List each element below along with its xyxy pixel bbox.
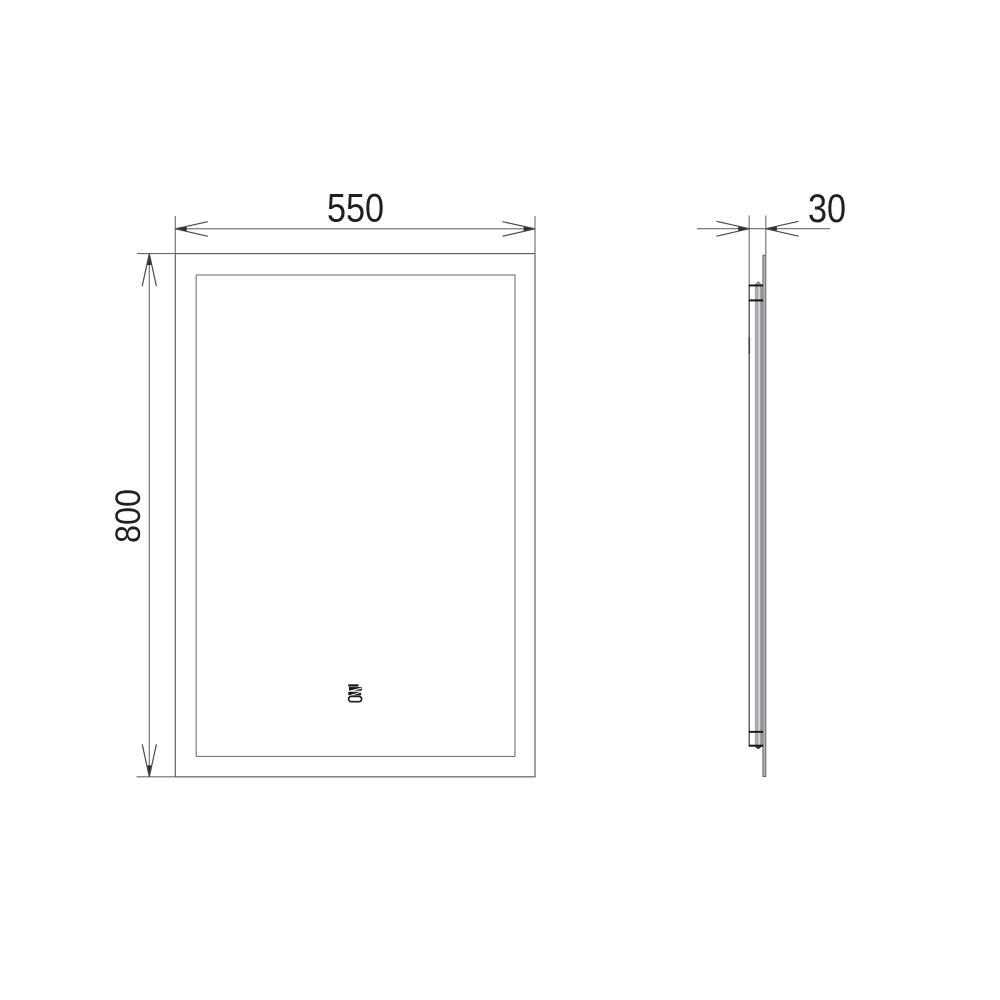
svg-text:800: 800 <box>109 489 148 543</box>
svg-text:30: 30 <box>808 187 846 231</box>
svg-text:550: 550 <box>327 187 384 231</box>
